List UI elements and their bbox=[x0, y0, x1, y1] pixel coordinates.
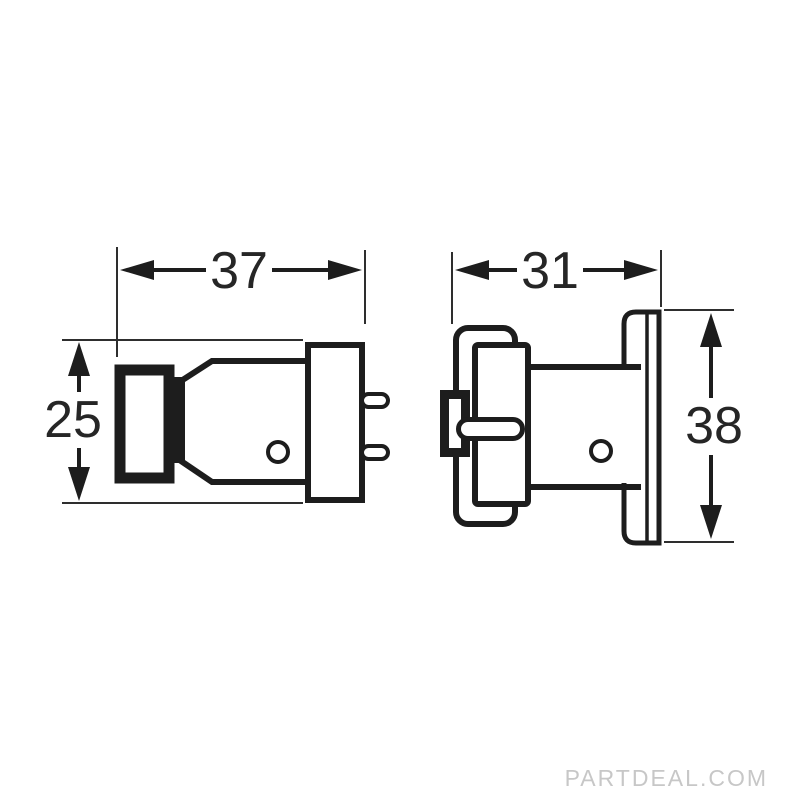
dim-label-31: 31 bbox=[521, 242, 579, 300]
dimension-height-left: 25 bbox=[44, 342, 102, 501]
body-opening-patch bbox=[600, 369, 644, 483]
connector-body bbox=[181, 361, 322, 482]
technical-diagram: 37 25 31 38 bbox=[0, 0, 800, 800]
socket-block bbox=[120, 370, 169, 478]
dim-label-38: 38 bbox=[685, 397, 743, 455]
dim-label-25: 25 bbox=[44, 391, 102, 449]
arrowhead-down bbox=[700, 505, 722, 539]
dim-label-37: 37 bbox=[210, 242, 268, 300]
terminal-pin-top bbox=[362, 394, 388, 407]
left-view bbox=[62, 340, 388, 503]
latch-slot bbox=[459, 420, 523, 439]
end-cap bbox=[308, 345, 362, 500]
arrowhead-right bbox=[328, 260, 362, 280]
right-view bbox=[445, 312, 660, 543]
dimension-height-right: 38 bbox=[664, 310, 743, 542]
terminal-pin-bottom bbox=[362, 446, 388, 459]
arrowhead-down bbox=[68, 467, 90, 501]
arrowhead-right bbox=[624, 260, 658, 280]
watermark: PARTDEAL.COM bbox=[565, 765, 768, 791]
